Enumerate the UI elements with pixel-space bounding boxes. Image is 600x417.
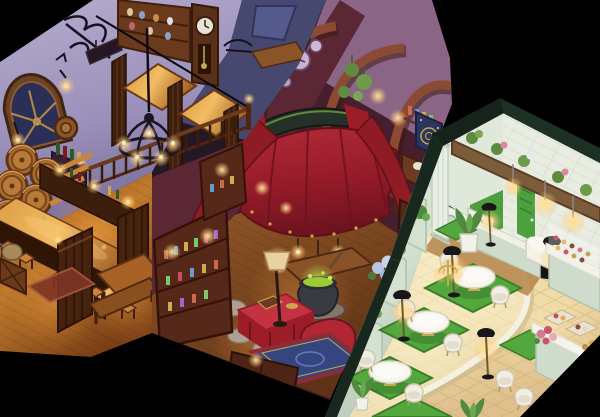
grandfather-clock xyxy=(192,4,218,86)
isometric-rooms-illustration xyxy=(0,0,600,417)
wall-lantern xyxy=(279,201,293,215)
wall-lantern xyxy=(254,180,270,196)
artwork-canvas xyxy=(0,0,600,417)
booth-partition xyxy=(168,80,182,172)
booth-partition xyxy=(112,54,126,146)
shelf-lantern xyxy=(369,87,387,105)
cafe-table xyxy=(369,361,411,394)
barrel-lid-shield xyxy=(55,117,77,139)
